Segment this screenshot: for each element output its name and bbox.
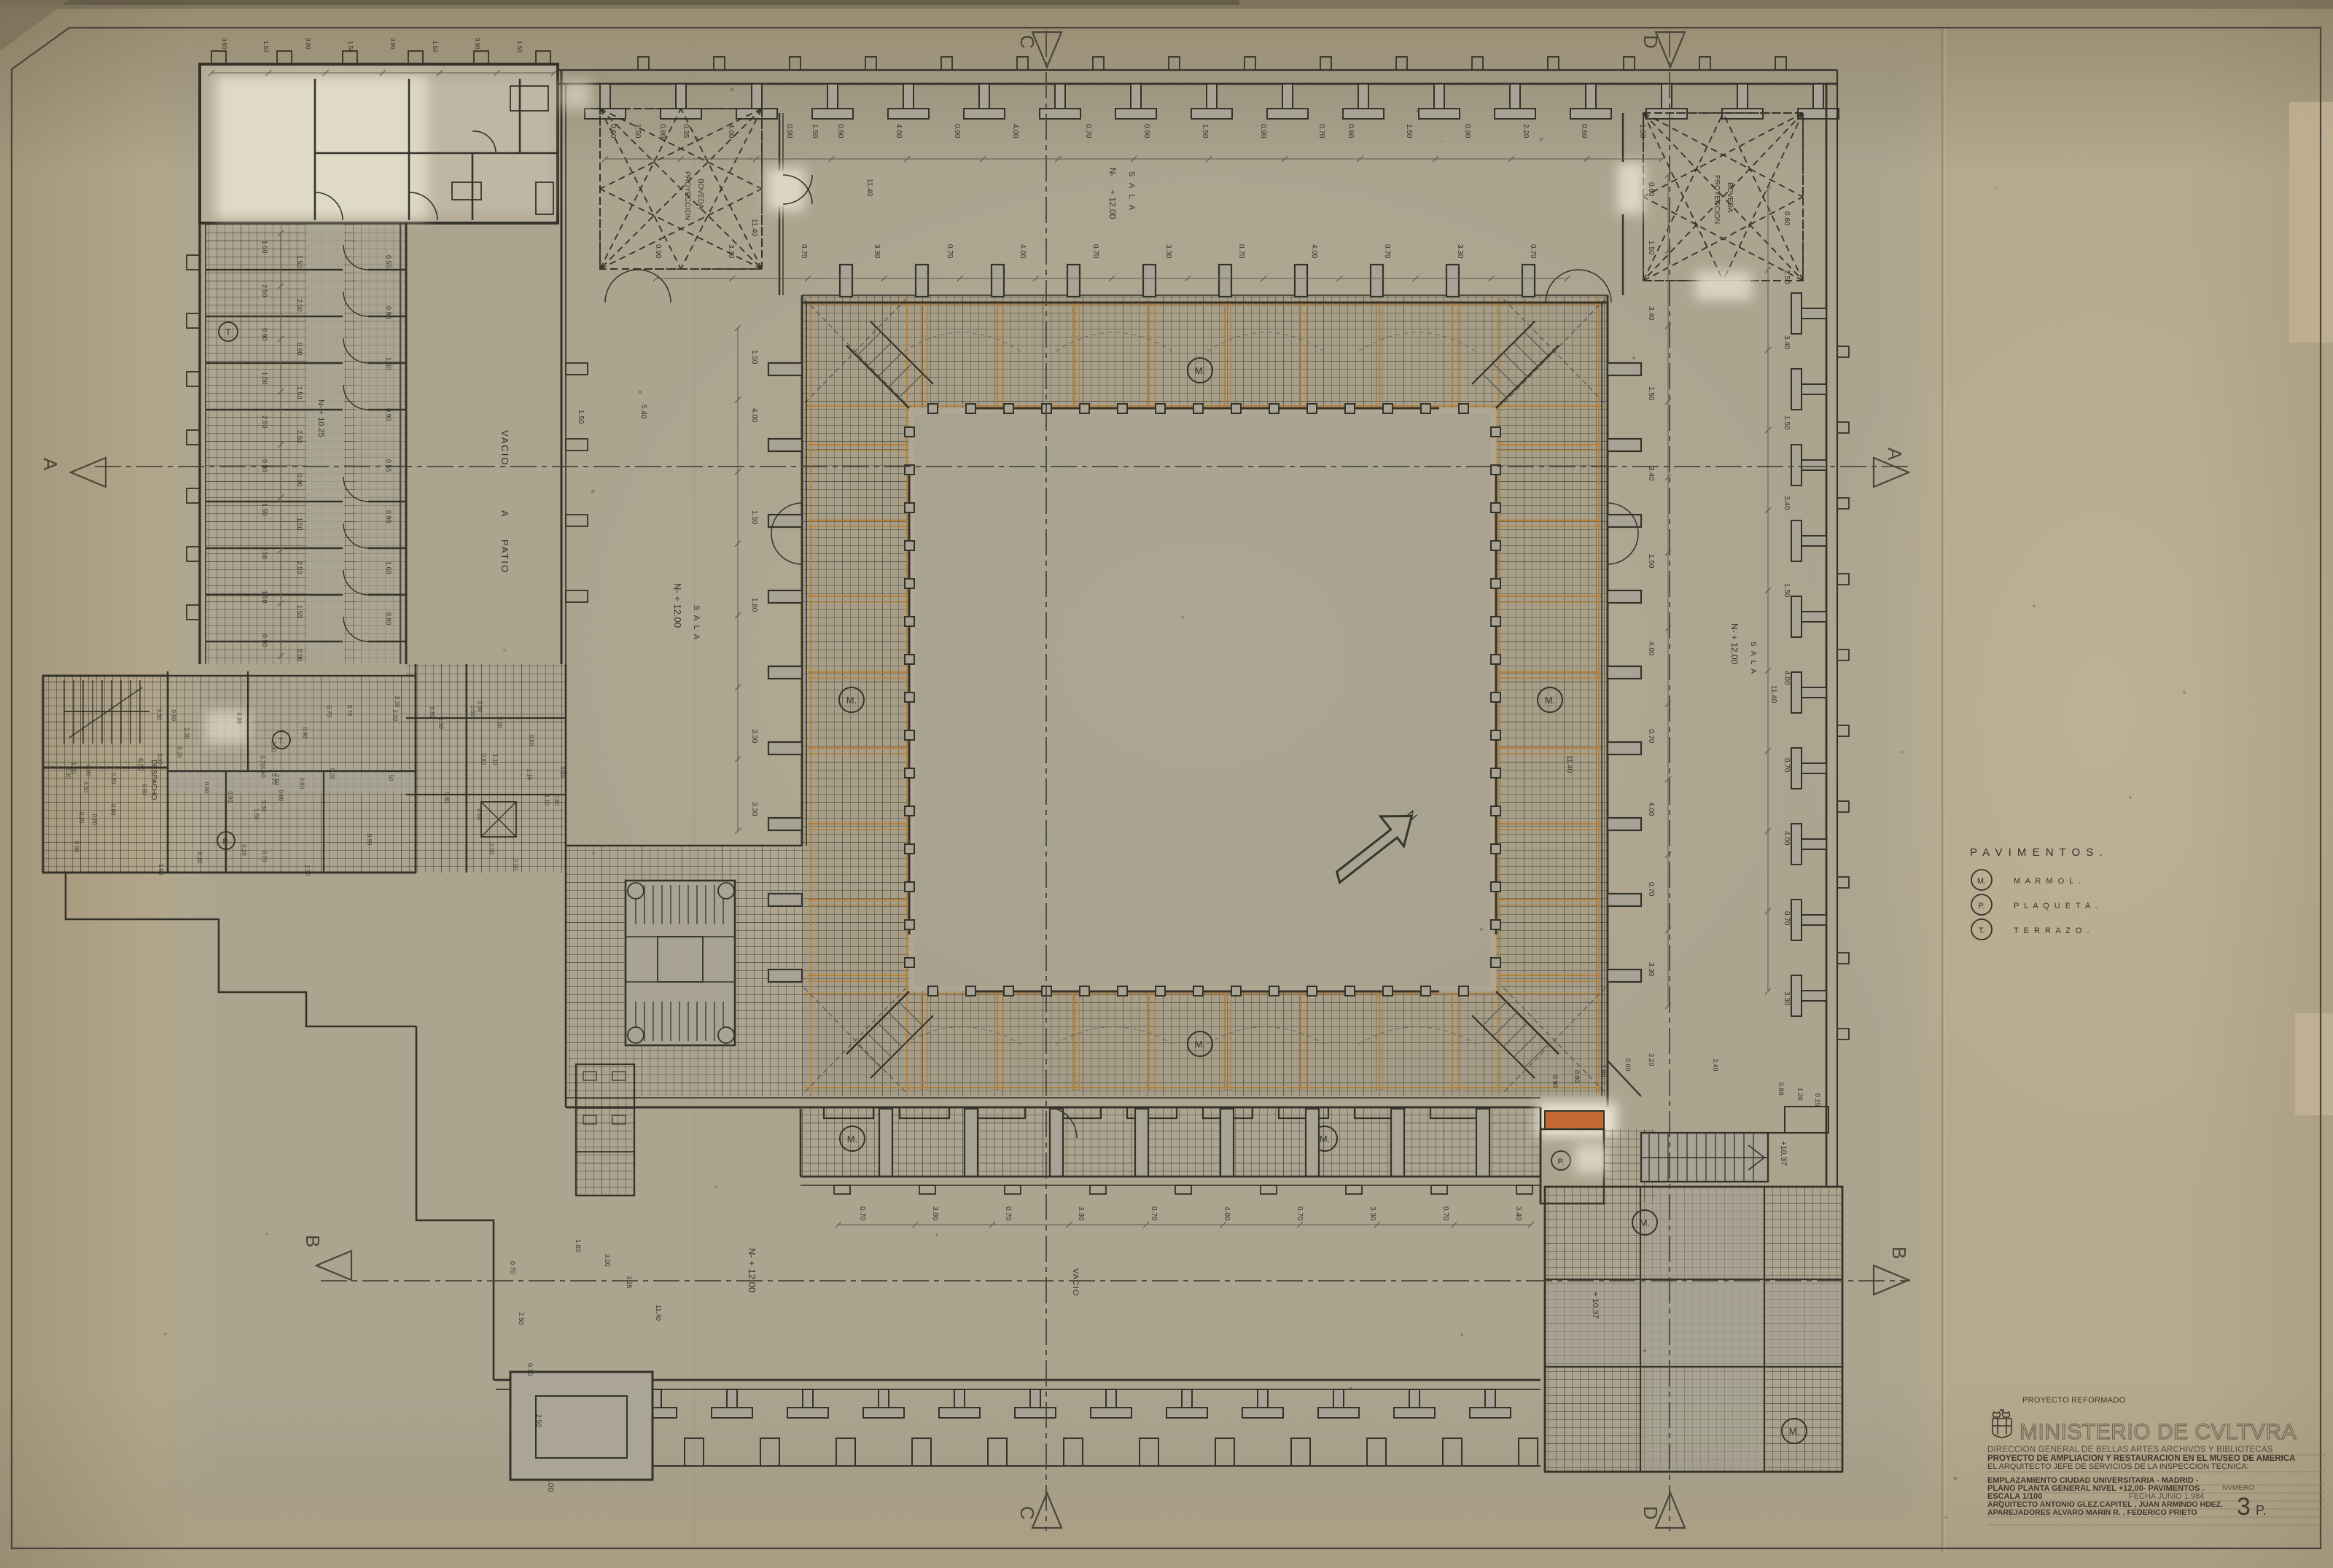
svg-text:PROYECCION: PROYECCION	[1713, 175, 1721, 224]
svg-text:3.00: 3.00	[604, 1254, 611, 1267]
svg-text:0.90: 0.90	[559, 766, 566, 778]
svg-text:3.30: 3.30	[873, 244, 881, 259]
svg-text:1.10: 1.10	[437, 717, 444, 729]
svg-text:3: 3	[2237, 1493, 2251, 1521]
svg-text:3.15: 3.15	[626, 1276, 633, 1289]
svg-text:2.50: 2.50	[535, 1414, 542, 1427]
svg-text:0.55: 0.55	[385, 459, 392, 472]
svg-text:3.40: 3.40	[1514, 1206, 1522, 1221]
svg-text:DESPACHO: DESPACHO	[149, 760, 157, 800]
svg-text:1.50: 1.50	[157, 864, 164, 875]
svg-text:PATIO: PATIO	[499, 539, 510, 574]
svg-text:0.80: 0.80	[278, 790, 284, 802]
svg-text:2.50: 2.50	[296, 430, 303, 443]
svg-text:0.70: 0.70	[1783, 758, 1791, 773]
svg-text:4.00: 4.00	[1310, 244, 1318, 259]
svg-text:BOVEDA: BOVEDA	[696, 179, 704, 209]
svg-text:P.: P.	[1558, 1158, 1565, 1166]
svg-text:1.10: 1.10	[543, 795, 550, 806]
svg-text:0.90: 0.90	[836, 124, 844, 139]
svg-text:M.: M.	[1789, 1426, 1799, 1437]
svg-text:2.30: 2.30	[184, 728, 190, 739]
svg-text:0.70: 0.70	[326, 706, 332, 717]
svg-text:2.20: 2.20	[1522, 124, 1530, 139]
svg-text:0.80: 0.80	[170, 710, 176, 722]
svg-text:0.90: 0.90	[227, 791, 233, 803]
svg-text:4.00: 4.00	[1011, 124, 1019, 139]
svg-text:0.70: 0.70	[1004, 1206, 1012, 1221]
svg-text:0.90: 0.90	[261, 328, 268, 341]
svg-text:0.90: 0.90	[296, 343, 303, 356]
svg-text:+10,37: +10,37	[1779, 1141, 1788, 1166]
svg-text:B: B	[1888, 1247, 1910, 1259]
svg-text:VACIO: VACIO	[499, 430, 510, 467]
svg-text:1.50: 1.50	[516, 41, 523, 52]
svg-text:0.90: 0.90	[302, 727, 308, 738]
svg-text:0.90: 0.90	[1463, 124, 1471, 139]
svg-text:DIRECCION GENERAL DE BELLAS: DIRECCION GENERAL DE BELLAS ARTES ARCHIV…	[1987, 1446, 2273, 1454]
svg-text:A: A	[499, 510, 510, 518]
svg-text:1.50: 1.50	[296, 255, 303, 268]
svg-text:T E R R A Z O .: T E R R A Z O .	[2014, 927, 2091, 935]
svg-text:T: T	[225, 327, 231, 338]
svg-text:BOVEDA: BOVEDA	[1726, 182, 1734, 213]
svg-text:M.: M.	[1195, 1039, 1205, 1050]
svg-text:1.80: 1.80	[1600, 1064, 1607, 1077]
svg-text:3.00: 3.00	[931, 1206, 939, 1221]
svg-text:1.10: 1.10	[492, 754, 499, 765]
svg-text:1.50: 1.50	[1638, 124, 1646, 139]
svg-text:MINISTERIO DE CVLTVRA: MINISTERIO DE CVLTVRA	[2020, 1420, 2297, 1444]
svg-text:3.30: 3.30	[394, 696, 400, 708]
svg-text:0.80: 0.80	[429, 706, 435, 718]
svg-text:1.50: 1.50	[1647, 241, 1655, 255]
svg-text:0.70: 0.70	[1383, 244, 1391, 259]
svg-text:0.90: 0.90	[1551, 1075, 1559, 1088]
svg-text:NVMERO: NVMERO	[2222, 1484, 2254, 1492]
svg-text:4.00: 4.00	[1647, 641, 1655, 656]
svg-text:5.40: 5.40	[639, 405, 647, 419]
svg-text:2.30: 2.30	[65, 768, 71, 779]
svg-text:1.50: 1.50	[261, 590, 268, 604]
svg-text:0.80: 0.80	[443, 792, 450, 803]
svg-text:0.90: 0.90	[203, 782, 210, 794]
svg-text:0.90: 0.90	[477, 701, 483, 713]
svg-text:C: C	[1016, 1506, 1038, 1520]
svg-text:3.40: 3.40	[1647, 467, 1655, 481]
svg-text:3.30: 3.30	[1164, 244, 1172, 259]
svg-text:0.90: 0.90	[953, 124, 961, 139]
svg-text:1.50: 1.50	[253, 808, 260, 820]
svg-text:M.: M.	[846, 695, 857, 706]
svg-text:1.50: 1.50	[432, 41, 438, 52]
svg-text:0.70: 0.70	[1237, 244, 1245, 259]
svg-text:4.00: 4.00	[750, 408, 758, 423]
svg-text:1.50: 1.50	[261, 503, 268, 516]
svg-text:T.: T.	[1979, 927, 1985, 935]
svg-text:EL ARQUITECTO JEFE DE SERVICIO: EL ARQUITECTO JEFE DE SERVICIOS DE LA IN…	[1987, 1462, 2248, 1471]
svg-text:0.70: 0.70	[1084, 124, 1092, 139]
svg-text:0.35: 0.35	[682, 124, 690, 139]
svg-text:0.80: 0.80	[529, 735, 535, 746]
svg-text:M.: M.	[1320, 1134, 1330, 1144]
svg-text:N- + 12.00: N- + 12.00	[672, 583, 683, 628]
svg-text:0.90: 0.90	[366, 834, 373, 846]
svg-text:1.50: 1.50	[262, 41, 269, 52]
svg-text:0.90: 0.90	[296, 474, 303, 487]
svg-text:N-: N-	[1107, 168, 1118, 177]
svg-text:4.00: 4.00	[1783, 831, 1791, 846]
svg-text:M A R M O L .: M A R M O L .	[2014, 877, 2082, 886]
svg-text:3.20: 3.20	[1648, 1053, 1655, 1066]
svg-text:1.50: 1.50	[1783, 416, 1791, 430]
svg-text:0.60: 0.60	[1580, 124, 1588, 139]
svg-text:11.40: 11.40	[655, 1305, 662, 1321]
svg-text:1.50: 1.50	[296, 605, 303, 618]
svg-text:0.70: 0.70	[270, 773, 277, 785]
svg-text:0.80: 0.80	[553, 795, 560, 806]
svg-text:0.70: 0.70	[858, 1206, 866, 1221]
svg-text:3.30: 3.30	[155, 709, 162, 720]
svg-text:0.90: 0.90	[474, 38, 480, 50]
svg-text:3.30: 3.30	[750, 729, 758, 744]
svg-text:VACIO: VACIO	[1071, 1268, 1080, 1296]
svg-text:0.70: 0.70	[1647, 882, 1655, 897]
svg-text:3.30: 3.30	[260, 800, 267, 812]
svg-text:4.00: 4.00	[1647, 802, 1655, 816]
svg-text:1.50: 1.50	[1783, 583, 1791, 598]
svg-text:0.70: 0.70	[259, 755, 265, 767]
svg-text:0.80: 0.80	[141, 784, 148, 796]
svg-text:0.60: 0.60	[1783, 211, 1791, 226]
svg-text:1.10: 1.10	[526, 768, 532, 780]
svg-text:S A L A: S A L A	[1127, 171, 1136, 212]
svg-text:0.90: 0.90	[658, 124, 666, 139]
svg-text:0.90: 0.90	[385, 408, 392, 421]
svg-text:0.80: 0.80	[298, 778, 305, 789]
svg-text:+ 12.00: + 12.00	[1107, 190, 1118, 219]
svg-text:0.60: 0.60	[1647, 182, 1655, 197]
svg-text:11.40: 11.40	[1565, 755, 1573, 773]
svg-text:3.40: 3.40	[1647, 306, 1655, 321]
svg-text:2.00: 2.00	[496, 717, 503, 728]
svg-text:2.50: 2.50	[261, 284, 268, 297]
svg-text:P A V I M E N T O S .: P A V I M E N T O S .	[1970, 846, 2104, 859]
svg-text:0.60: 0.60	[221, 38, 227, 50]
svg-text:1.50: 1.50	[347, 41, 354, 52]
svg-text:T.: T.	[279, 737, 285, 746]
svg-text:1.50: 1.50	[750, 350, 758, 364]
svg-text:1.50: 1.50	[811, 124, 819, 139]
svg-text:0.90: 0.90	[654, 244, 662, 259]
svg-text:0.80: 0.80	[1777, 1083, 1785, 1096]
svg-text:2.00: 2.00	[488, 843, 495, 855]
svg-text:PROYECTO REFORMADO: PROYECTO REFORMADO	[2022, 1396, 2126, 1405]
svg-text:2.50: 2.50	[518, 1312, 525, 1325]
svg-text:3.40: 3.40	[1783, 335, 1791, 350]
svg-text:3.40: 3.40	[1783, 496, 1791, 510]
svg-text:0.20: 0.20	[241, 844, 247, 856]
svg-text:0.70: 0.70	[1647, 729, 1655, 744]
svg-text:3.30: 3.30	[1647, 962, 1655, 977]
svg-text:0.70: 0.70	[1317, 124, 1325, 139]
svg-text:0.70: 0.70	[1529, 244, 1537, 259]
svg-text:0.70: 0.70	[1150, 1206, 1158, 1221]
svg-text:PROYECCION: PROYECCION	[683, 171, 691, 220]
svg-text:11.40: 11.40	[750, 219, 758, 237]
svg-text:1.20: 1.20	[1796, 1088, 1804, 1101]
svg-text:4.00: 4.00	[1783, 671, 1791, 685]
svg-text:1.50: 1.50	[1405, 124, 1413, 139]
svg-text:M.: M.	[1977, 877, 1986, 886]
svg-text:D: D	[1640, 1506, 1662, 1520]
svg-text:1.50: 1.50	[750, 510, 758, 525]
svg-text:11.40: 11.40	[865, 179, 873, 197]
svg-text:2.50: 2.50	[304, 865, 311, 877]
svg-text:2.50: 2.50	[296, 561, 303, 574]
svg-text:0.60: 0.60	[1624, 1058, 1632, 1072]
svg-text:0.20: 0.20	[78, 812, 85, 824]
svg-text:0.90: 0.90	[389, 38, 396, 50]
svg-text:1.50: 1.50	[260, 766, 266, 778]
svg-text:1.50: 1.50	[1783, 270, 1791, 284]
svg-text:0.60: 0.60	[609, 124, 617, 139]
svg-text:4.00: 4.00	[895, 124, 903, 139]
svg-text:P.: P.	[1979, 902, 1985, 910]
svg-text:6.20: 6.20	[137, 758, 144, 771]
svg-text:2.00: 2.00	[512, 859, 518, 870]
svg-text:0.70: 0.70	[800, 244, 808, 259]
svg-text:0.70: 0.70	[1091, 244, 1099, 259]
svg-text:0.55: 0.55	[385, 255, 392, 268]
svg-text:+ 10,37: + 10,37	[1591, 1292, 1600, 1319]
svg-text:0.80: 0.80	[476, 808, 483, 820]
svg-text:3.30: 3.30	[750, 802, 758, 816]
svg-text:1.50: 1.50	[1647, 386, 1655, 401]
svg-text:0.70: 0.70	[1296, 1206, 1304, 1221]
svg-text:0.70: 0.70	[346, 705, 353, 717]
svg-text:1.50: 1.50	[261, 372, 268, 385]
svg-text:S A L A: S A L A	[1749, 641, 1757, 675]
svg-text:2.30: 2.30	[270, 741, 277, 752]
svg-text:3.30: 3.30	[236, 712, 243, 724]
svg-text:4.00: 4.00	[1019, 244, 1027, 259]
svg-text:S A L A: S A L A	[692, 605, 701, 641]
svg-text:1.60: 1.60	[385, 561, 392, 574]
svg-text:0.70: 0.70	[526, 1363, 534, 1376]
svg-text:A: A	[39, 458, 61, 471]
svg-text:0.70: 0.70	[1441, 1206, 1449, 1221]
svg-text:0.80: 0.80	[91, 814, 98, 826]
svg-text:1.50: 1.50	[634, 124, 642, 139]
svg-text:1.50: 1.50	[1201, 124, 1209, 139]
svg-text:0.80: 0.80	[110, 804, 117, 816]
svg-text:P.: P.	[2256, 1503, 2267, 1518]
svg-text:0.20: 0.20	[176, 746, 182, 758]
svg-text:P L A Q U E T A .: P L A Q U E T A .	[2014, 902, 2099, 910]
svg-text:N- + 12.00: N- + 12.00	[1729, 623, 1740, 665]
svg-text:3.30: 3.30	[1456, 244, 1464, 259]
svg-text:0.70: 0.70	[509, 1261, 516, 1274]
svg-text:0.90: 0.90	[296, 649, 303, 662]
svg-text:M.: M.	[847, 1134, 857, 1144]
svg-text:0.90: 0.90	[261, 634, 268, 647]
svg-text:2.30: 2.30	[392, 710, 399, 722]
svg-text:0.90: 0.90	[305, 38, 311, 50]
svg-text:C: C	[1016, 35, 1038, 49]
svg-text:0.70: 0.70	[261, 851, 268, 862]
svg-text:0.90: 0.90	[261, 459, 268, 472]
svg-text:A: A	[1884, 448, 1906, 461]
svg-text:1.60: 1.60	[385, 357, 392, 370]
svg-text:1.50: 1.50	[261, 241, 268, 254]
svg-text:0.90: 0.90	[85, 765, 92, 777]
svg-text:0.70: 0.70	[946, 244, 954, 259]
svg-text:2.50: 2.50	[261, 547, 268, 560]
svg-text:0.15: 0.15	[1814, 1093, 1821, 1107]
svg-text:N- + 10.25: N- + 10.25	[316, 399, 325, 437]
svg-text:11.40: 11.40	[1769, 685, 1777, 703]
svg-text:N- + 12.00: N- + 12.00	[747, 1248, 757, 1292]
svg-text:1.50: 1.50	[1647, 554, 1655, 569]
svg-text:0.80: 0.80	[110, 773, 117, 784]
svg-text:D: D	[1640, 35, 1662, 49]
svg-text:0.90: 0.90	[385, 612, 392, 625]
svg-text:3.30: 3.30	[727, 244, 735, 259]
svg-text:0.80: 0.80	[480, 754, 487, 765]
svg-text:3.30: 3.30	[157, 753, 163, 765]
svg-text:APAREJADORES ALVARO MA: APAREJADORES ALVARO MARIN R. , FEDERICO …	[1987, 1508, 2197, 1517]
svg-text:4.00: 4.00	[727, 124, 735, 139]
svg-text:3.30: 3.30	[1783, 991, 1791, 1006]
svg-text:2.50: 2.50	[296, 299, 303, 312]
svg-text:4.00: 4.00	[1223, 1206, 1231, 1221]
svg-text:1.80: 1.80	[750, 598, 758, 612]
svg-text:1.50: 1.50	[296, 386, 303, 399]
svg-text:0.90: 0.90	[1142, 124, 1150, 139]
svg-text:B: B	[302, 1235, 324, 1247]
svg-text:3.30: 3.30	[1368, 1206, 1376, 1221]
svg-text:0.70: 0.70	[1783, 911, 1791, 926]
svg-text:0.80: 0.80	[1573, 1070, 1581, 1083]
svg-text:0.90: 0.90	[1259, 124, 1267, 139]
svg-text:P.: P.	[223, 838, 230, 846]
svg-text:3.30: 3.30	[1077, 1206, 1085, 1221]
svg-text:M.: M.	[1195, 365, 1205, 376]
svg-text:1.50: 1.50	[387, 770, 394, 781]
svg-text:0.90: 0.90	[385, 306, 392, 319]
svg-text:2.50: 2.50	[261, 416, 268, 429]
svg-text:0.90: 0.90	[785, 124, 793, 139]
svg-text:0.55: 0.55	[470, 706, 476, 717]
svg-text:1.50: 1.50	[296, 518, 303, 531]
svg-text:3.40: 3.40	[1712, 1058, 1719, 1072]
svg-text:3.30: 3.30	[82, 781, 89, 793]
svg-text:0.20: 0.20	[329, 768, 335, 780]
svg-text:0.90: 0.90	[73, 841, 79, 853]
svg-text:1.00: 1.00	[575, 1239, 582, 1252]
svg-text:0.20: 0.20	[196, 852, 203, 864]
svg-text:0.90: 0.90	[385, 510, 392, 523]
svg-text:0.90: 0.90	[1347, 124, 1355, 139]
svg-text:M.: M.	[1545, 695, 1555, 706]
svg-text:1.50: 1.50	[577, 410, 585, 424]
